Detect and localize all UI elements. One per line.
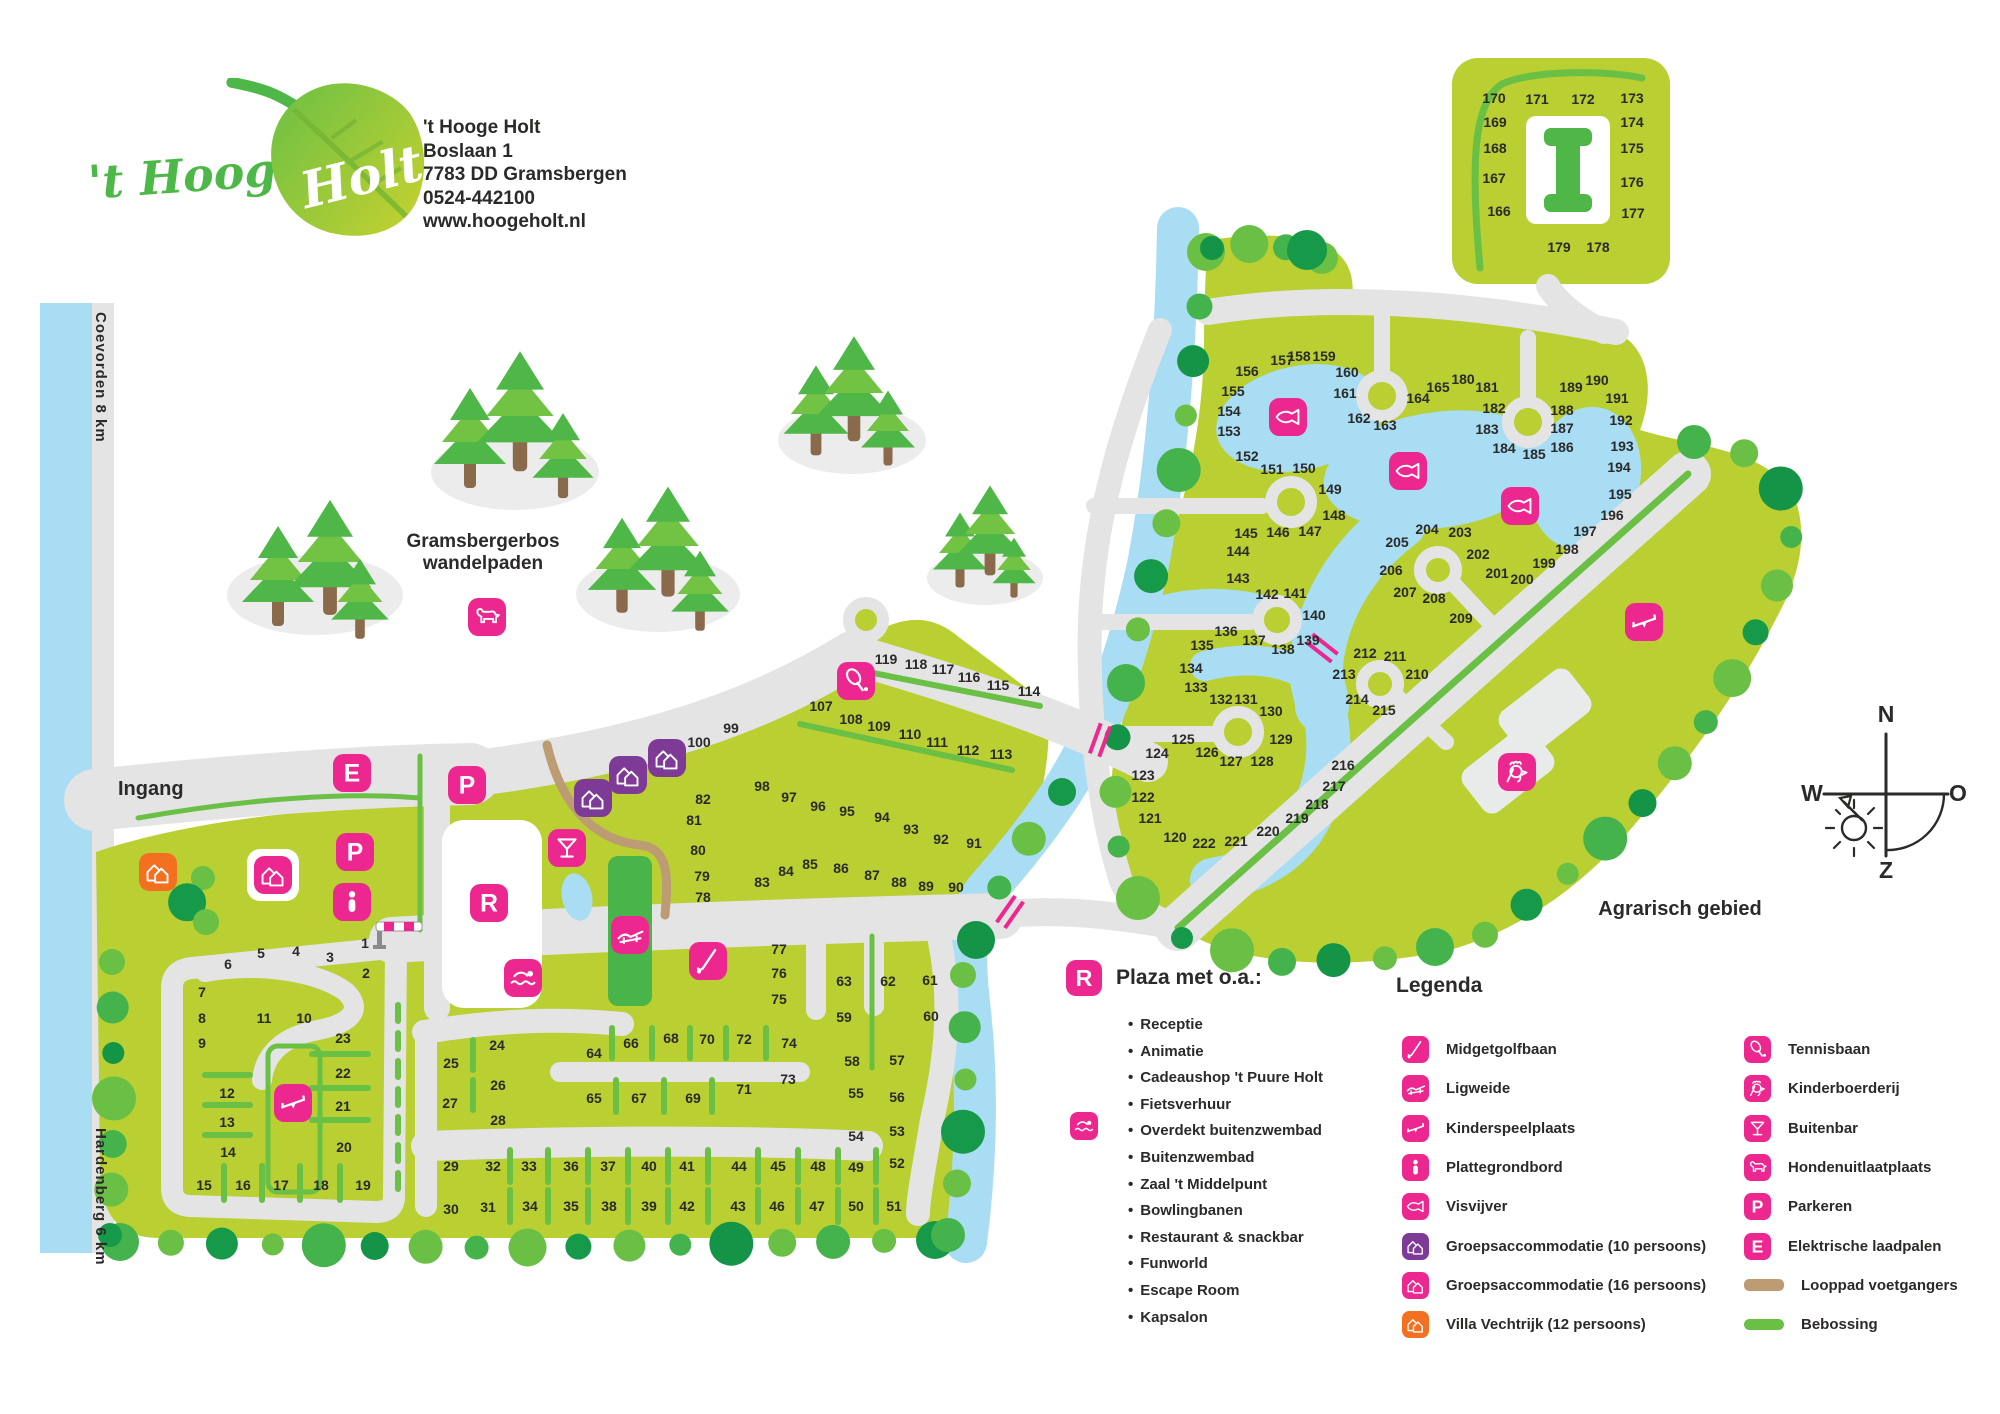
legend-label: Looppad voetgangers <box>1801 1277 1958 1294</box>
lot-number: 5 <box>257 945 265 961</box>
logo-leaf: Holt <box>212 78 442 253</box>
tree-icon <box>1177 345 1209 377</box>
lot-number: 145 <box>1234 525 1258 541</box>
info-icon <box>333 883 371 921</box>
lot-number: 160 <box>1335 364 1359 380</box>
fish-icon <box>1402 1193 1429 1220</box>
lot-number: 189 <box>1559 379 1583 395</box>
lot-number: 136 <box>1214 623 1238 639</box>
lot-number: 79 <box>694 868 710 884</box>
lot-number: 128 <box>1250 753 1274 769</box>
legend-column-left: MidgetgolfbaanLigweideKinderspeelplaatsP… <box>1402 1030 1706 1344</box>
legend-label: Bebossing <box>1801 1316 1878 1333</box>
lot-number: 48 <box>810 1158 826 1174</box>
lot-number: 198 <box>1555 541 1579 557</box>
lot-number: 45 <box>770 1158 786 1174</box>
lot-number: 166 <box>1487 203 1511 219</box>
tree-icon <box>1759 467 1803 511</box>
lot-number: 184 <box>1492 440 1516 456</box>
lot-number: 82 <box>695 791 711 807</box>
lot-number: 120 <box>1163 829 1187 845</box>
lot-number: 204 <box>1415 521 1439 537</box>
lot-number: 6 <box>224 956 232 972</box>
sun-arrow <box>1840 796 1851 807</box>
lot-number: 125 <box>1171 731 1195 747</box>
letterE-icon <box>333 754 371 792</box>
lot-number: 119 <box>875 651 898 667</box>
lot-number: 202 <box>1466 546 1490 562</box>
tree-icon <box>949 1011 981 1043</box>
lot-number: 219 <box>1285 810 1309 826</box>
compass: NWOZ <box>1801 701 1967 883</box>
lot-number: 179 <box>1547 239 1571 255</box>
tree-icon <box>193 909 219 935</box>
legend-label: Parkeren <box>1788 1198 1852 1215</box>
houses-icon <box>1402 1233 1429 1260</box>
lot-number: 183 <box>1475 421 1499 437</box>
tree-icon <box>1175 405 1197 427</box>
lot-number: 86 <box>833 860 849 876</box>
lot-number: 114 <box>1018 683 1041 699</box>
lot-number: 161 <box>1333 385 1357 401</box>
lot-number: 217 <box>1322 778 1346 794</box>
tree-icon <box>1107 664 1145 702</box>
lot-number: 151 <box>1260 461 1284 477</box>
lot-number: 131 <box>1234 691 1258 707</box>
info-icon <box>1402 1154 1429 1181</box>
lot-number: 8 <box>198 1010 206 1026</box>
lot-number: 20 <box>336 1139 352 1155</box>
lot-number: 92 <box>933 831 949 847</box>
lot-number: 140 <box>1302 607 1326 623</box>
plaza-item: •Zaal 't Middelpunt <box>1128 1172 1418 1199</box>
lot-number: 15 <box>196 1177 212 1193</box>
lot-number: 67 <box>631 1090 647 1106</box>
lot-number: 24 <box>489 1037 505 1053</box>
lot-number: 97 <box>781 789 797 805</box>
lot-number: 222 <box>1192 835 1216 851</box>
lot-number: 14 <box>220 1144 236 1160</box>
lot-number: 185 <box>1522 446 1546 462</box>
lot-number: 118 <box>905 656 928 672</box>
lot-number: 132 <box>1209 691 1233 707</box>
address-line: 0524-442100 <box>423 187 627 211</box>
lot-number: 215 <box>1372 702 1396 718</box>
tree-icon <box>1743 619 1769 645</box>
lot-number: 81 <box>686 812 702 828</box>
tree-icon <box>950 962 976 988</box>
legend-label: Ligweide <box>1446 1080 1510 1097</box>
lot-number: 178 <box>1586 239 1610 255</box>
lot-number: 156 <box>1235 363 1259 379</box>
legend-label: Kinderspeelplaats <box>1446 1120 1575 1137</box>
zwembad-icon <box>1070 1112 1098 1140</box>
lot-number: 31 <box>480 1199 496 1215</box>
lot-number: 139 <box>1296 632 1320 648</box>
plaza-item: •Fietsverhuur <box>1128 1092 1418 1119</box>
lot-number: 98 <box>754 778 770 794</box>
lot-number: 201 <box>1485 565 1509 581</box>
lot-number: 199 <box>1532 555 1556 571</box>
tree-icon <box>99 949 125 975</box>
lot-number: 54 <box>848 1128 864 1144</box>
lot-number: 142 <box>1255 586 1279 602</box>
lot-number: 175 <box>1620 140 1644 156</box>
lot-number: 181 <box>1475 379 1499 395</box>
lot-number: 221 <box>1224 833 1248 849</box>
lot-number: 39 <box>641 1198 657 1214</box>
legend-row: Kinderboerderij <box>1744 1069 1958 1108</box>
fish-icon <box>1501 487 1539 525</box>
lot-number: 162 <box>1347 410 1371 426</box>
lot-number: 74 <box>781 1035 797 1051</box>
legend-row: Midgetgolfbaan <box>1402 1030 1706 1069</box>
lot-number: 137 <box>1242 632 1266 648</box>
plaza-item: •Kapsalon <box>1128 1305 1418 1332</box>
letterR-icon <box>470 884 508 922</box>
lot-number: 13 <box>219 1114 235 1130</box>
houses-icon <box>1402 1311 1429 1338</box>
tree-icon <box>1134 559 1168 593</box>
tree-icon <box>1694 710 1718 734</box>
lot-number: 182 <box>1482 400 1506 416</box>
legend-title: Legenda <box>1396 974 1482 998</box>
lot-number: 168 <box>1483 140 1507 156</box>
lot-number: 65 <box>586 1090 602 1106</box>
tennis-icon <box>1744 1036 1771 1063</box>
lot-number: 111 <box>926 734 948 750</box>
plaza-item: •Restaurant & snackbar <box>1128 1225 1418 1252</box>
plaza-item: •Overdekt buitenzwembad <box>1128 1118 1418 1145</box>
label-hardenberg: Hardenberg 6 km <box>92 1128 109 1266</box>
lot-number: 62 <box>880 973 896 989</box>
tree-icon <box>302 1223 346 1267</box>
swimmer-icon <box>504 959 542 997</box>
tree-icon <box>1583 817 1627 861</box>
lot-number: 176 <box>1620 174 1644 190</box>
lot-number: 208 <box>1422 590 1446 606</box>
lot-number: 186 <box>1550 439 1574 455</box>
address-line: 7783 DD Gramsbergen <box>423 163 627 187</box>
lot-number: 85 <box>802 856 818 872</box>
lot-number: 200 <box>1510 571 1534 587</box>
lot-number: 2 <box>362 965 370 981</box>
lot-number: 174 <box>1620 114 1644 130</box>
tree-icon <box>941 1110 985 1154</box>
tree-icon <box>1108 836 1130 858</box>
lot-number: 50 <box>848 1198 864 1214</box>
lot-number: 18 <box>313 1177 329 1193</box>
lot-number: 33 <box>521 1158 537 1174</box>
lot-number: 158 <box>1287 348 1311 364</box>
lot-number: 9 <box>198 1035 206 1051</box>
lot-number: 37 <box>600 1158 616 1174</box>
tree-icon <box>92 1077 136 1121</box>
plaza-item: •Animatie <box>1128 1039 1418 1066</box>
tree-icon <box>943 1170 971 1198</box>
lot-number: 213 <box>1332 666 1356 682</box>
lot-number: 197 <box>1573 523 1597 539</box>
plaza-items: •Receptie•Animatie•Cadeaushop 't Puure H… <box>1128 1012 1418 1331</box>
letterP-icon <box>448 766 486 804</box>
tree-icon <box>206 1228 238 1260</box>
leaf-stem <box>232 82 300 108</box>
lot-number: 28 <box>490 1112 506 1128</box>
lot-number: 55 <box>848 1085 864 1101</box>
tree-icon <box>1730 439 1758 467</box>
tree-icon <box>262 1233 284 1255</box>
lot-number: 17 <box>273 1177 289 1193</box>
tree-icon <box>1152 509 1180 537</box>
lot-number: 73 <box>780 1071 796 1087</box>
lot-number: 69 <box>685 1090 701 1106</box>
seesaw-icon <box>1625 603 1663 641</box>
tree-icon <box>957 921 995 959</box>
lot-number: 96 <box>810 798 826 814</box>
legend-label: Kinderboerderij <box>1788 1080 1900 1097</box>
tree-icon <box>1200 236 1224 260</box>
lot-number: 194 <box>1607 459 1631 475</box>
footpath-swatch-icon <box>1744 1279 1784 1291</box>
legend-row: Visvijver <box>1402 1187 1706 1226</box>
letterP-icon <box>1744 1193 1771 1220</box>
lot-number: 143 <box>1226 570 1250 586</box>
lot-number: 84 <box>778 863 794 879</box>
tree-icon <box>1157 448 1201 492</box>
seesaw-icon <box>1402 1115 1429 1142</box>
lot-number: 60 <box>923 1008 939 1024</box>
lot-number: 163 <box>1373 417 1397 433</box>
lot-number: 72 <box>736 1031 752 1047</box>
compass-w: W <box>1801 780 1823 806</box>
compass-o: O <box>1949 780 1967 806</box>
lot-number: 12 <box>219 1085 235 1101</box>
lot-number: 212 <box>1353 645 1377 661</box>
lot-number: 19 <box>355 1177 371 1193</box>
dog-icon <box>468 598 506 636</box>
legend-column-right: TennisbaanKinderboerderijBuitenbarHonden… <box>1744 1030 1958 1344</box>
lot-number: 133 <box>1184 679 1208 695</box>
tree-icon <box>1557 863 1579 885</box>
lot-number: 66 <box>623 1035 639 1051</box>
cocktail-icon <box>1744 1115 1771 1142</box>
label-ingang: Ingang <box>118 778 184 801</box>
lot-number: 109 <box>867 718 891 734</box>
tree-icon <box>1048 778 1076 806</box>
legend-label: Tennisbaan <box>1788 1041 1870 1058</box>
lot-number: 169 <box>1483 114 1507 130</box>
lot-number: 205 <box>1385 534 1409 550</box>
tree-icon <box>1472 922 1498 948</box>
plaza-panel: Plaza met o.a.: •Receptie•Animatie•Cadea… <box>1066 960 1406 996</box>
lot-number: 63 <box>836 973 852 989</box>
lot-number: 83 <box>754 874 770 890</box>
tree-icon <box>613 1230 645 1262</box>
tree-icon <box>361 1232 389 1260</box>
tree-icon <box>1287 230 1327 270</box>
legend-row: Looppad voetgangers <box>1744 1266 1958 1305</box>
lot-number: 26 <box>490 1077 506 1093</box>
rooster-icon <box>1498 753 1536 791</box>
lot-number: 124 <box>1145 745 1169 761</box>
lot-number: 112 <box>957 742 980 758</box>
legend-label: Groepsaccommodatie (10 persoons) <box>1446 1238 1706 1255</box>
seesaw-icon <box>274 1084 312 1122</box>
houses-icon <box>609 756 647 794</box>
lot-number: 130 <box>1259 703 1283 719</box>
lot-number: 141 <box>1283 585 1307 601</box>
lot-number: 90 <box>948 879 964 895</box>
lot-number: 117 <box>932 661 955 677</box>
tree-icon <box>987 876 1011 900</box>
lot-number: 25 <box>443 1055 459 1071</box>
lot-number: 159 <box>1312 348 1336 364</box>
address-line: 't Hooge Holt <box>423 116 627 140</box>
lot-number: 216 <box>1331 757 1355 773</box>
lot-number: 47 <box>809 1198 825 1214</box>
lot-number: 214 <box>1345 691 1369 707</box>
tree-icon <box>816 1225 850 1259</box>
lot-number: 154 <box>1217 403 1241 419</box>
tree-icon <box>872 1229 896 1253</box>
tree-icon <box>1116 876 1160 920</box>
lot-number: 144 <box>1226 543 1250 559</box>
legend-row: Buitenbar <box>1744 1109 1958 1148</box>
plaza-item: •Escape Room <box>1128 1278 1418 1305</box>
legend-label: Hondenuitlaatplaats <box>1788 1159 1931 1176</box>
lot-number: 196 <box>1600 507 1624 523</box>
lot-number: 173 <box>1620 90 1644 106</box>
tree-icon <box>931 1218 965 1252</box>
cocktail-icon <box>548 829 586 867</box>
tree-icon <box>1100 776 1132 808</box>
legend-row: Groepsaccommodatie (16 persoons) <box>1402 1266 1706 1305</box>
lot-number: 192 <box>1609 412 1633 428</box>
label-bos-line1: Gramsbergerbos <box>360 531 606 553</box>
lounger-icon <box>1402 1075 1429 1102</box>
tree-icon <box>1012 822 1046 856</box>
lot-number: 191 <box>1605 390 1629 406</box>
lot-number: 187 <box>1550 420 1574 436</box>
tree-icon <box>1677 425 1711 459</box>
houses-icon <box>254 856 292 894</box>
lot-number: 56 <box>889 1089 905 1105</box>
lot-number: 11 <box>257 1010 272 1026</box>
lot-number: 113 <box>990 746 1013 762</box>
tree-icon <box>1187 294 1213 320</box>
lot-number: 134 <box>1179 660 1203 676</box>
tree-icon <box>768 1229 796 1257</box>
fish-icon <box>1269 398 1307 436</box>
legend-row: Kinderspeelplaats <box>1402 1109 1706 1148</box>
lot-number: 180 <box>1451 371 1475 387</box>
legend-label: Visvijver <box>1446 1198 1507 1215</box>
lot-number: 68 <box>663 1030 679 1046</box>
address-line: www.hoogeholt.nl <box>423 210 627 234</box>
tree-icon <box>1780 526 1802 548</box>
address-block: 't Hooge Holt Boslaan 1 7783 DD Gramsber… <box>423 116 627 234</box>
lot-number: 209 <box>1449 610 1473 626</box>
tree-icon <box>954 1069 976 1091</box>
lot-number: 147 <box>1298 523 1322 539</box>
label-gramsbergerbos: Gramsbergerbos wandelpaden <box>360 531 606 575</box>
tree-icon <box>565 1234 591 1260</box>
lot-number: 88 <box>891 874 907 890</box>
tree-icon <box>709 1222 753 1266</box>
lot-number: 138 <box>1271 641 1295 657</box>
lot-number: 122 <box>1131 789 1155 805</box>
lot-number: 95 <box>839 803 855 819</box>
lot-number: 51 <box>886 1198 902 1214</box>
lot-number: 207 <box>1393 584 1417 600</box>
tree-icon <box>1171 927 1193 949</box>
tree-icon <box>1761 570 1793 602</box>
label-coevorden: Coevorden 8 km <box>92 312 109 443</box>
legend-row: Bebossing <box>1744 1305 1958 1344</box>
lot-number: 195 <box>1608 486 1632 502</box>
tree-icon <box>97 992 129 1024</box>
lot-number: 93 <box>903 821 919 837</box>
lot-number: 27 <box>442 1095 458 1111</box>
lot-number: 107 <box>809 698 833 714</box>
lot-number: 52 <box>889 1155 905 1171</box>
label-agrarisch: Agrarisch gebied <box>1570 898 1790 921</box>
legend-row: Parkeren <box>1744 1187 1958 1226</box>
lot-number: 78 <box>695 889 711 905</box>
lot-number: 1 <box>361 935 369 951</box>
lot-number: 129 <box>1269 731 1293 747</box>
lot-number: 57 <box>889 1052 905 1068</box>
tree-icon <box>669 1234 691 1256</box>
tree-icon <box>1511 889 1543 921</box>
legend-label: Elektrische laadpalen <box>1788 1238 1941 1255</box>
lot-number: 23 <box>335 1030 351 1046</box>
lot-number: 108 <box>839 711 863 727</box>
lot-number: 121 <box>1138 810 1162 826</box>
label-bos-line2: wandelpaden <box>360 553 606 575</box>
lot-number: 59 <box>836 1009 852 1025</box>
legend-row: Groepsaccommodatie (10 persoons) <box>1402 1226 1706 1265</box>
lot-number: 171 <box>1525 91 1549 107</box>
lot-number: 100 <box>687 734 711 750</box>
lot-number: 35 <box>563 1198 579 1214</box>
legend-row: Plattegrondbord <box>1402 1148 1706 1187</box>
lot-number: 149 <box>1318 481 1342 497</box>
lot-number: 203 <box>1448 524 1472 540</box>
lot-number: 58 <box>844 1053 860 1069</box>
dog-icon <box>1744 1154 1771 1181</box>
lot-number: 152 <box>1235 448 1259 464</box>
letterP-icon <box>336 833 374 871</box>
legend-label: Villa Vechtrijk (12 persoons) <box>1446 1316 1646 1333</box>
lot-number: 76 <box>771 965 787 981</box>
houses-icon <box>1402 1272 1429 1299</box>
houses-icon <box>574 779 612 817</box>
lot-number: 115 <box>987 677 1010 693</box>
lot-number: 206 <box>1379 562 1403 578</box>
lot-number: 172 <box>1571 91 1595 107</box>
lot-number: 165 <box>1426 379 1450 395</box>
legend-label: Midgetgolfbaan <box>1446 1041 1557 1058</box>
houses-icon <box>139 853 177 891</box>
receptie-icon <box>1066 960 1102 996</box>
lot-number: 61 <box>922 972 938 988</box>
tree-icon <box>1416 928 1454 966</box>
lot-number: 4 <box>292 943 300 959</box>
compass-z: Z <box>1879 857 1893 883</box>
lot-number: 91 <box>966 835 982 851</box>
legend-row: Elektrische laadpalen <box>1744 1226 1958 1265</box>
